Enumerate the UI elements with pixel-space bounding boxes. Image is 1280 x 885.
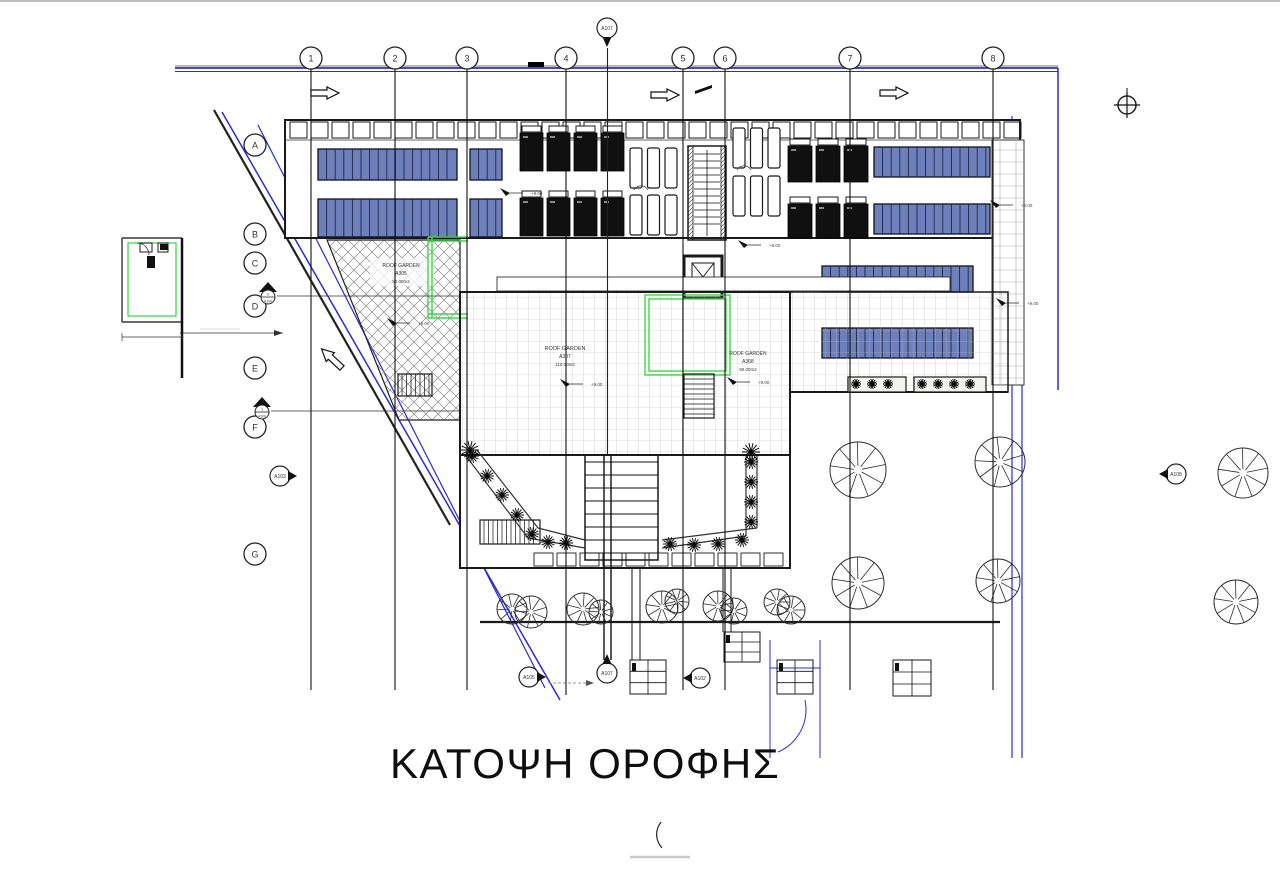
svg-text:4: 4 [563, 54, 568, 64]
svg-text:7: 7 [847, 54, 852, 64]
svg-text:1: 1 [308, 54, 313, 64]
svg-text:+9.00: +9.00 [531, 191, 543, 196]
drawing-title: ΚΑΤΟΨΗ ΟΡΟΦΗΣ [390, 740, 890, 788]
svg-text:A105: A105 [523, 675, 535, 681]
svg-text:A305: A305 [395, 271, 407, 277]
svg-text:110.00m2: 110.00m2 [555, 362, 575, 367]
svg-text:F: F [252, 423, 258, 433]
svg-text:A107: A107 [601, 671, 613, 677]
svg-text:ROOF GARDEN: ROOF GARDEN [382, 263, 420, 269]
svg-text:+9.00: +9.00 [1027, 301, 1039, 306]
svg-text:G: G [251, 550, 258, 560]
svg-text:3: 3 [464, 54, 469, 64]
svg-text:+9.00: +9.00 [418, 321, 430, 326]
svg-text:D: D [252, 302, 259, 312]
dimension-line [180, 329, 283, 336]
svg-text:A100: A100 [264, 300, 272, 304]
svg-text:+9.00: +9.00 [591, 382, 603, 387]
svg-text:A103: A103 [274, 474, 286, 480]
svg-text:B: B [252, 230, 258, 240]
svg-text:C: C [252, 259, 259, 269]
svg-text:5: 5 [680, 54, 685, 64]
survey-crosshair [1114, 88, 1140, 118]
svg-text:A108: A108 [1170, 472, 1182, 478]
svg-text:A102: A102 [694, 676, 706, 682]
svg-text:2: 2 [392, 54, 397, 64]
svg-text:ROOF GARDEN: ROOF GARDEN [729, 351, 767, 357]
svg-text:8: 8 [990, 54, 995, 64]
svg-text:+9.00: +9.00 [758, 380, 770, 385]
svg-text:A107: A107 [601, 26, 613, 32]
svg-text:+9.00: +9.00 [1021, 203, 1033, 208]
svg-text:90.00m2: 90.00m2 [739, 367, 757, 372]
svg-text:A307: A307 [559, 354, 571, 360]
planter-strips [848, 377, 986, 392]
roof-deck [460, 277, 1008, 622]
svg-text:A100: A100 [258, 415, 266, 419]
svg-text:1: 1 [261, 408, 263, 412]
title-notes [630, 822, 690, 857]
svg-text:+9.00: +9.00 [769, 243, 781, 248]
svg-text:E: E [252, 364, 258, 374]
svg-text:6: 6 [722, 54, 727, 64]
svg-text:ROOF GARDEN: ROOF GARDEN [545, 346, 586, 352]
svg-text:A308: A308 [742, 359, 754, 365]
svg-text:2: 2 [267, 293, 269, 297]
svg-text:A: A [252, 141, 258, 151]
detail-room [122, 238, 182, 378]
